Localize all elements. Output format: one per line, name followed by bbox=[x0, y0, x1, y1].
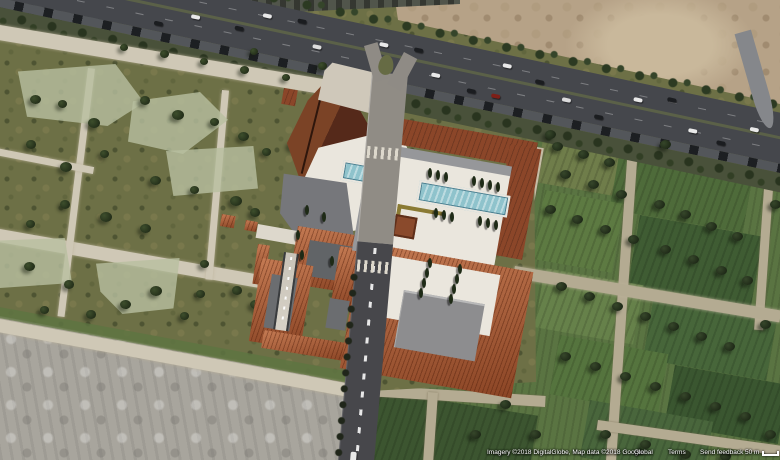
map-attribution: Imagery ©2018 DigitalGlobe, Map data ©20… bbox=[487, 448, 643, 458]
terms-link[interactable]: Terms bbox=[668, 448, 686, 458]
cypress-tree bbox=[436, 170, 440, 180]
cypress-tree bbox=[472, 176, 476, 186]
cypress-tree bbox=[434, 208, 438, 218]
scale-label[interactable]: 50 m bbox=[745, 448, 759, 458]
cypress-tree bbox=[300, 250, 304, 260]
scale-bar bbox=[762, 451, 779, 456]
cypress-tree bbox=[449, 294, 453, 304]
cypress-tree bbox=[322, 212, 326, 222]
cypress-tree bbox=[486, 218, 490, 228]
cypress-tree bbox=[450, 212, 454, 222]
cypress-tree bbox=[330, 256, 334, 266]
cypress-tree bbox=[478, 216, 482, 226]
feedback-link[interactable]: Send feedback bbox=[700, 448, 743, 458]
cypress-tree bbox=[480, 178, 484, 188]
cypress-tree bbox=[442, 210, 446, 220]
cypress-tree bbox=[425, 268, 429, 278]
global-link[interactable]: Global bbox=[634, 448, 653, 458]
cypress-tree bbox=[494, 220, 498, 230]
cypress-tree bbox=[488, 180, 492, 190]
cypress-tree bbox=[419, 288, 423, 298]
cypress-tree bbox=[422, 278, 426, 288]
cypress-tree bbox=[428, 258, 432, 268]
map-canvas[interactable]: Imagery ©2018 DigitalGlobe, Map data ©20… bbox=[0, 0, 780, 460]
cypress-tree bbox=[296, 230, 300, 240]
cypress-tree bbox=[458, 264, 462, 274]
cypress-tree bbox=[428, 168, 432, 178]
cypress-tree bbox=[455, 274, 459, 284]
cypress-tree bbox=[305, 205, 309, 215]
cypress-tree bbox=[444, 172, 448, 182]
cypress-tree bbox=[452, 284, 456, 294]
cypress-tree bbox=[496, 182, 500, 192]
car bbox=[350, 452, 357, 460]
